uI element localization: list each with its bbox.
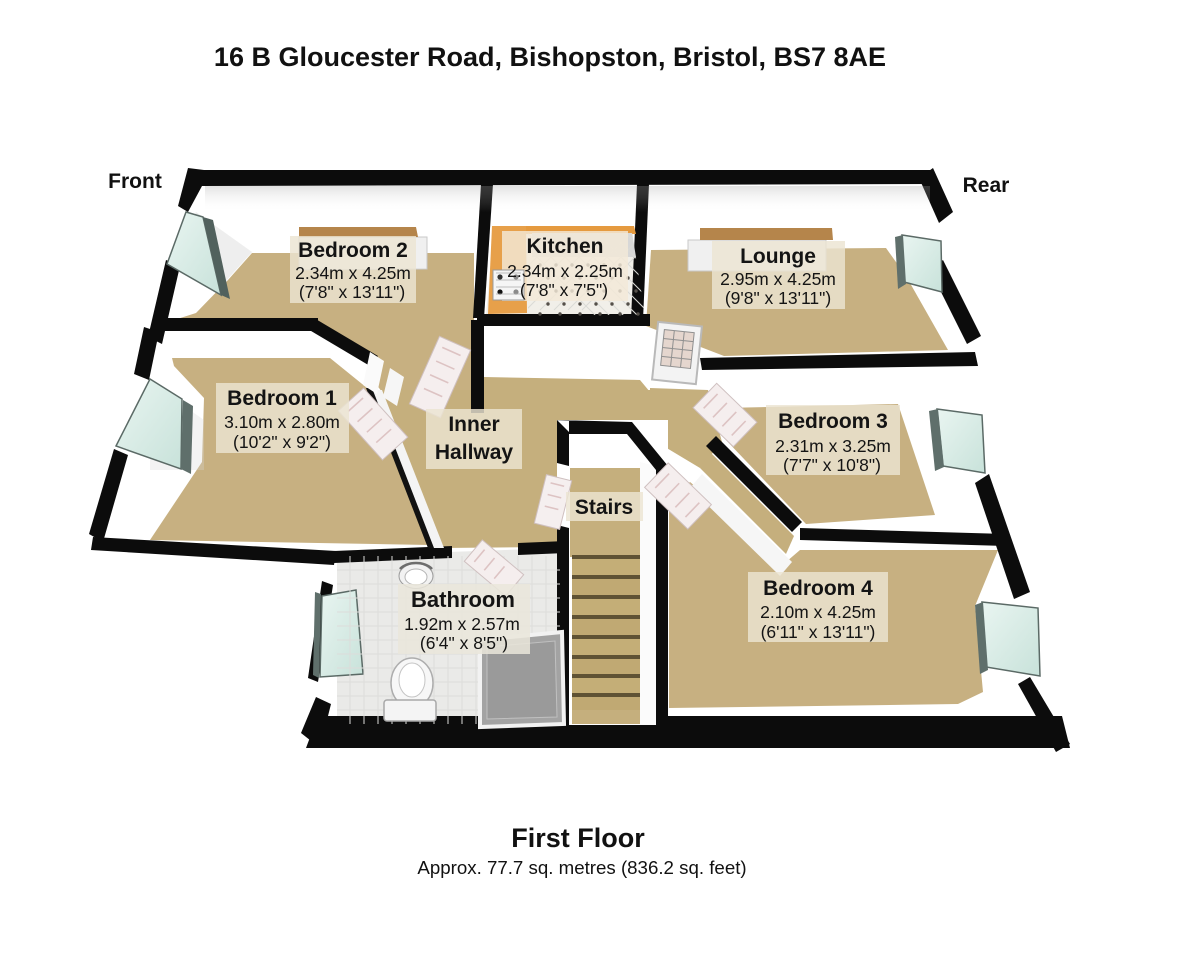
svg-text:Rear: Rear: [963, 174, 1010, 197]
svg-text:(9'8" x 13'11"): (9'8" x 13'11"): [725, 288, 831, 308]
svg-text:Hallway: Hallway: [435, 441, 514, 464]
svg-text:Approx. 77.7 sq. metres (836.: Approx. 77.7 sq. metres (836.2 sq. feet): [417, 857, 746, 878]
svg-text:(7'8" x 13'11"): (7'8" x 13'11"): [299, 282, 405, 302]
svg-text:16 B Gloucester Road, Bishopst: 16 B Gloucester Road, Bishopston, Bristo…: [214, 42, 886, 72]
svg-text:Inner: Inner: [448, 413, 499, 436]
svg-text:Kitchen: Kitchen: [526, 235, 603, 258]
svg-text:2.31m x 3.25m: 2.31m x 3.25m: [775, 436, 891, 456]
svg-text:(7'7" x 10'8"): (7'7" x 10'8"): [783, 455, 881, 475]
svg-text:Bedroom 4: Bedroom 4: [763, 577, 873, 600]
svg-text:2.10m x 4.25m: 2.10m x 4.25m: [760, 602, 876, 622]
svg-text:Bedroom 2: Bedroom 2: [298, 239, 408, 262]
svg-text:2.34m x 2.25m: 2.34m x 2.25m: [507, 261, 623, 281]
svg-text:Bedroom 1: Bedroom 1: [227, 387, 337, 410]
svg-text:Stairs: Stairs: [575, 496, 633, 519]
svg-text:(7'8" x 7'5"): (7'8" x 7'5"): [520, 280, 608, 300]
svg-text:2.34m x 4.25m: 2.34m x 4.25m: [295, 263, 411, 283]
svg-text:Front: Front: [108, 170, 162, 193]
svg-text:3.10m x 2.80m: 3.10m x 2.80m: [224, 412, 340, 432]
svg-text:2.95m x 4.25m: 2.95m x 4.25m: [720, 269, 836, 289]
svg-text:(10'2" x 9'2"): (10'2" x 9'2"): [233, 432, 331, 452]
svg-text:1.92m x 2.57m: 1.92m x 2.57m: [404, 614, 520, 634]
svg-text:First Floor: First Floor: [511, 823, 645, 853]
svg-text:(6'4" x 8'5"): (6'4" x 8'5"): [420, 633, 508, 653]
svg-text:Bedroom 3: Bedroom 3: [778, 410, 888, 433]
svg-text:Bathroom: Bathroom: [411, 587, 515, 612]
svg-text:(6'11" x 13'11"): (6'11" x 13'11"): [761, 622, 876, 642]
svg-text:Lounge: Lounge: [740, 245, 816, 268]
